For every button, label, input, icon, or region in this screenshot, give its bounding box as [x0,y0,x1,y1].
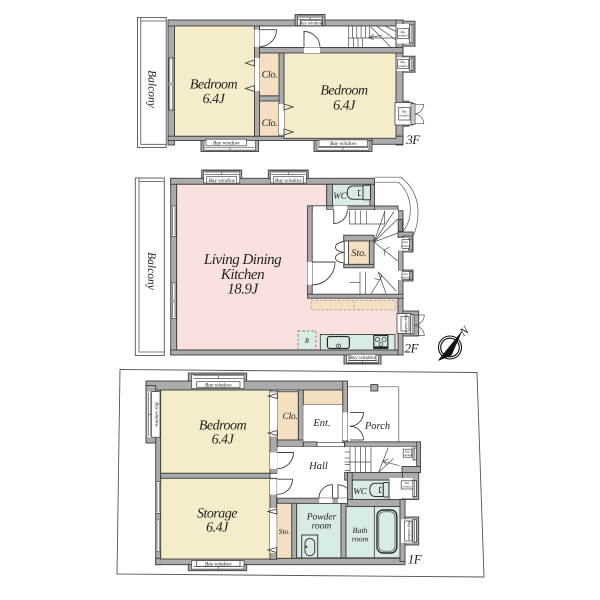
svg-text:Bay window: Bay window [349,355,376,361]
svg-text:window: window [398,34,409,38]
svg-text:1F: 1F [408,552,423,567]
svg-text:Bay window: Bay window [404,314,409,334]
svg-text:R: R [304,337,310,345]
svg-text:6.4J: 6.4J [333,99,356,114]
svg-text:Bay window: Bay window [407,521,412,541]
svg-text:Bay window: Bay window [208,178,235,184]
svg-text:window: window [402,485,411,489]
svg-text:Bay window: Bay window [330,141,357,147]
svg-text:Porch: Porch [364,421,390,432]
svg-text:Ent.: Ent. [312,418,330,429]
svg-text:Balcony: Balcony [145,252,157,291]
svg-text:Bay window: Bay window [205,561,232,567]
svg-text:Bay window: Bay window [213,140,240,146]
svg-text:18.9J: 18.9J [227,282,259,298]
svg-text:Bedroom: Bedroom [320,84,368,99]
svg-text:Hall: Hall [308,461,328,472]
svg-text:WC: WC [333,191,347,201]
svg-text:Balcony: Balcony [146,70,158,109]
svg-text:Bay window: Bay window [154,402,160,427]
svg-text:room: room [352,535,369,544]
svg-text:Clo.: Clo. [283,412,298,422]
svg-text:Living Dining: Living Dining [203,252,282,268]
svg-text:Clo.: Clo. [262,118,278,129]
svg-text:Bedroom: Bedroom [190,78,238,93]
svg-text:6.4J: 6.4J [212,433,235,448]
svg-text:Sto.: Sto. [279,527,291,536]
svg-text:6.4J: 6.4J [203,92,226,107]
svg-text:window: window [401,275,410,279]
svg-text:Sto.: Sto. [351,248,366,259]
svg-text:window: window [398,64,409,68]
svg-text:WC: WC [353,486,367,496]
svg-text:Clo.: Clo. [262,70,278,81]
svg-text:Bay window: Bay window [275,178,302,184]
svg-text:window: window [399,114,410,118]
svg-text:Storage: Storage [197,507,237,522]
svg-text:2F: 2F [405,341,420,356]
svg-text:Bedroom: Bedroom [199,419,247,434]
svg-text:3F: 3F [405,132,421,147]
svg-text:Bay window: Bay window [205,382,232,388]
svg-text:6.4J: 6.4J [206,521,229,536]
svg-text:window: window [401,244,410,248]
svg-text:window: window [403,453,412,457]
svg-text:room: room [312,522,332,532]
